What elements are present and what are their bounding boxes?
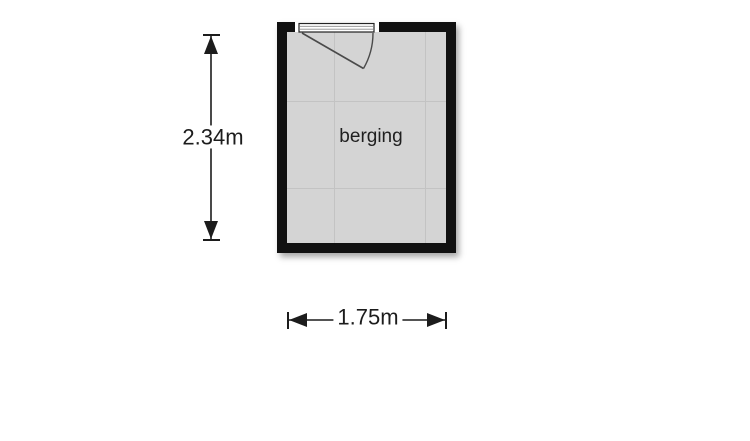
dimension-horizontal-label: 1.75m [333, 305, 402, 328]
dimension-vertical-label: 2.34m [178, 125, 247, 148]
floorplan-canvas: berging 2.34m 1.75m [0, 0, 750, 441]
floor-grid-line [287, 188, 446, 189]
arrow-down-icon [204, 221, 218, 239]
floor-grid-line [425, 32, 426, 243]
room-label: berging [339, 126, 402, 148]
arrow-up-icon [204, 36, 218, 54]
door-opening [295, 22, 379, 32]
arrow-right-icon [427, 313, 445, 327]
floor-grid-line [334, 32, 335, 243]
floor-grid-line [287, 101, 446, 102]
arrow-left-icon [289, 313, 307, 327]
